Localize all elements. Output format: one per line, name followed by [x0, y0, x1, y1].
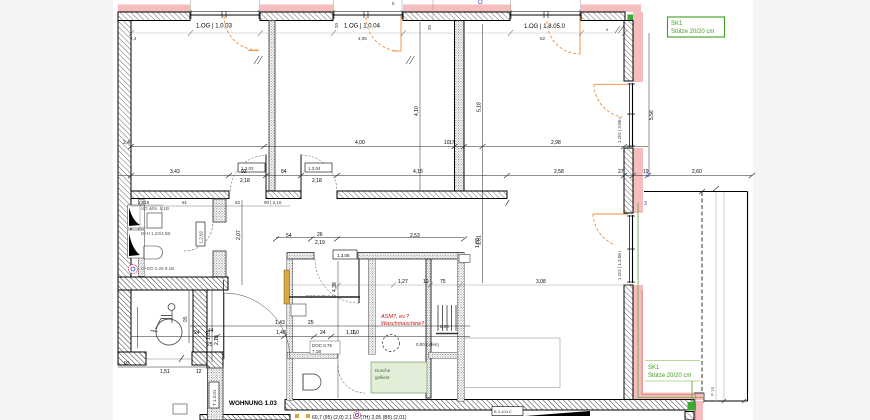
svg-text:7,1B: 7,1B	[312, 349, 321, 354]
svg-text:3: 3	[644, 201, 647, 207]
svg-text:24: 24	[320, 330, 326, 336]
svg-text:4,00: 4,00	[355, 140, 365, 146]
svg-text:P 16: P 16	[710, 386, 715, 396]
svg-text:84: 84	[281, 169, 287, 175]
svg-text:O: O	[478, 0, 483, 6]
svg-text:2,4: 2,4	[123, 140, 130, 146]
svg-text:2,98: 2,98	[551, 140, 561, 146]
svg-text:1,27: 1,27	[398, 279, 408, 285]
svg-text:20: 20	[427, 24, 432, 30]
svg-text:8,00: 8,00	[440, 324, 449, 329]
svg-text:2,07: 2,07	[236, 230, 242, 240]
svg-text:Dusche: Dusche	[375, 368, 391, 373]
svg-text:1.3.05: 1.3.05	[337, 253, 350, 258]
svg-text:1,015: 1,015	[138, 200, 150, 205]
svg-text:1.2.02: 1.2.02	[199, 230, 204, 243]
svg-text:91: 91	[182, 200, 188, 205]
svg-text:54: 54	[286, 233, 292, 239]
svg-text:gefliest: gefliest	[375, 375, 390, 380]
svg-text:25: 25	[308, 320, 314, 326]
svg-text:ASM?, ev.?: ASM?, ev.?	[380, 314, 410, 320]
svg-text:UG allm. 5,1B: UG allm. 5,1B	[141, 206, 169, 211]
svg-text:Stütze 20/20 cm: Stütze 20/20 cm	[671, 29, 714, 35]
svg-text:4,10: 4,10	[414, 106, 420, 116]
svg-text:3,08: 3,08	[536, 279, 546, 285]
svg-text:B 3.104 C: B 3.104 C	[494, 409, 512, 414]
svg-text:2,58: 2,58	[554, 169, 564, 175]
svg-text:SK1: SK1	[671, 21, 683, 27]
svg-text:2,53: 2,53	[410, 233, 420, 239]
svg-text:1.OG | 1.0.03: 1.OG | 1.0.03	[196, 24, 233, 30]
svg-text:2,18: 2,18	[240, 178, 250, 184]
svg-text:1,48: 1,48	[276, 330, 286, 336]
svg-text:17: 17	[449, 140, 455, 146]
svg-text:62: 62	[235, 200, 241, 205]
svg-text:1,80: 1,80	[475, 238, 481, 248]
svg-text:4,05: 4,05	[358, 36, 367, 41]
svg-text:4,15: 4,15	[413, 169, 423, 175]
svg-text:1,51: 1,51	[160, 369, 170, 375]
svg-text:24: 24	[194, 330, 200, 336]
svg-text:Stütze 20/20 cm: Stütze 20/20 cm	[648, 373, 691, 379]
svg-text:27: 27	[618, 169, 624, 175]
svg-text:WOHNUNG 1.03: WOHNUNG 1.03	[229, 400, 277, 407]
svg-text:SK1: SK1	[648, 365, 660, 371]
svg-text:4,38: 4,38	[332, 282, 338, 292]
svg-text:2,19: 2,19	[315, 240, 325, 246]
svg-text:3,43: 3,43	[170, 169, 180, 175]
svg-text:75: 75	[440, 279, 446, 285]
svg-text:92: 92	[124, 361, 130, 367]
svg-text:1.OG | 3.06.I: 1.OG | 3.06.I	[617, 117, 622, 143]
svg-text:12: 12	[196, 369, 202, 375]
svg-text:2,18: 2,18	[312, 178, 322, 184]
svg-text:1.OG | 1.0.04: 1.OG | 1.0.04	[344, 24, 381, 30]
svg-text:95: 95	[183, 316, 189, 322]
svg-text:92: 92	[241, 169, 247, 175]
svg-text:1,43: 1,43	[275, 320, 285, 326]
svg-text:20: 20	[334, 22, 339, 28]
svg-text:C: C	[646, 173, 650, 179]
svg-text:90 | 2,10: 90 | 2,10	[264, 200, 282, 205]
svg-text:10: 10	[423, 279, 429, 285]
svg-text:5,18: 5,18	[477, 102, 483, 112]
svg-text:2,4: 2,4	[130, 36, 137, 41]
svg-text:T 1.3.01: T 1.3.01	[212, 389, 217, 406]
svg-text:1.OG | 1.3.06 I: 1.OG | 1.3.06 I	[617, 251, 622, 280]
svg-text:26: 26	[317, 232, 323, 238]
svg-text:2,60: 2,60	[692, 169, 702, 175]
svg-text:1,01: 1,01	[206, 330, 212, 340]
svg-text:62: 62	[540, 36, 546, 41]
svg-text:1.3.04: 1.3.04	[308, 166, 321, 171]
svg-text:1.OG | 1.8.05.0: 1.OG | 1.8.05.0	[524, 24, 566, 30]
svg-text:5,56: 5,56	[649, 110, 655, 120]
svg-text:2,18: 2,18	[214, 335, 220, 345]
svg-text:1,0: 1,0	[352, 330, 359, 336]
svg-text:C+DO 0.26 9.1B: C+DO 0.26 9.1B	[141, 266, 174, 271]
svg-text:0,00 (offen): 0,00 (offen)	[416, 342, 439, 347]
svg-text:DOC 0,75: DOC 0,75	[312, 343, 333, 348]
svg-text:B+H 1,23/4,5B: B+H 1,23/4,5B	[141, 231, 170, 236]
svg-text:DOC 0.75 7,1B: DOC 0.75 7,1B	[306, 294, 337, 299]
